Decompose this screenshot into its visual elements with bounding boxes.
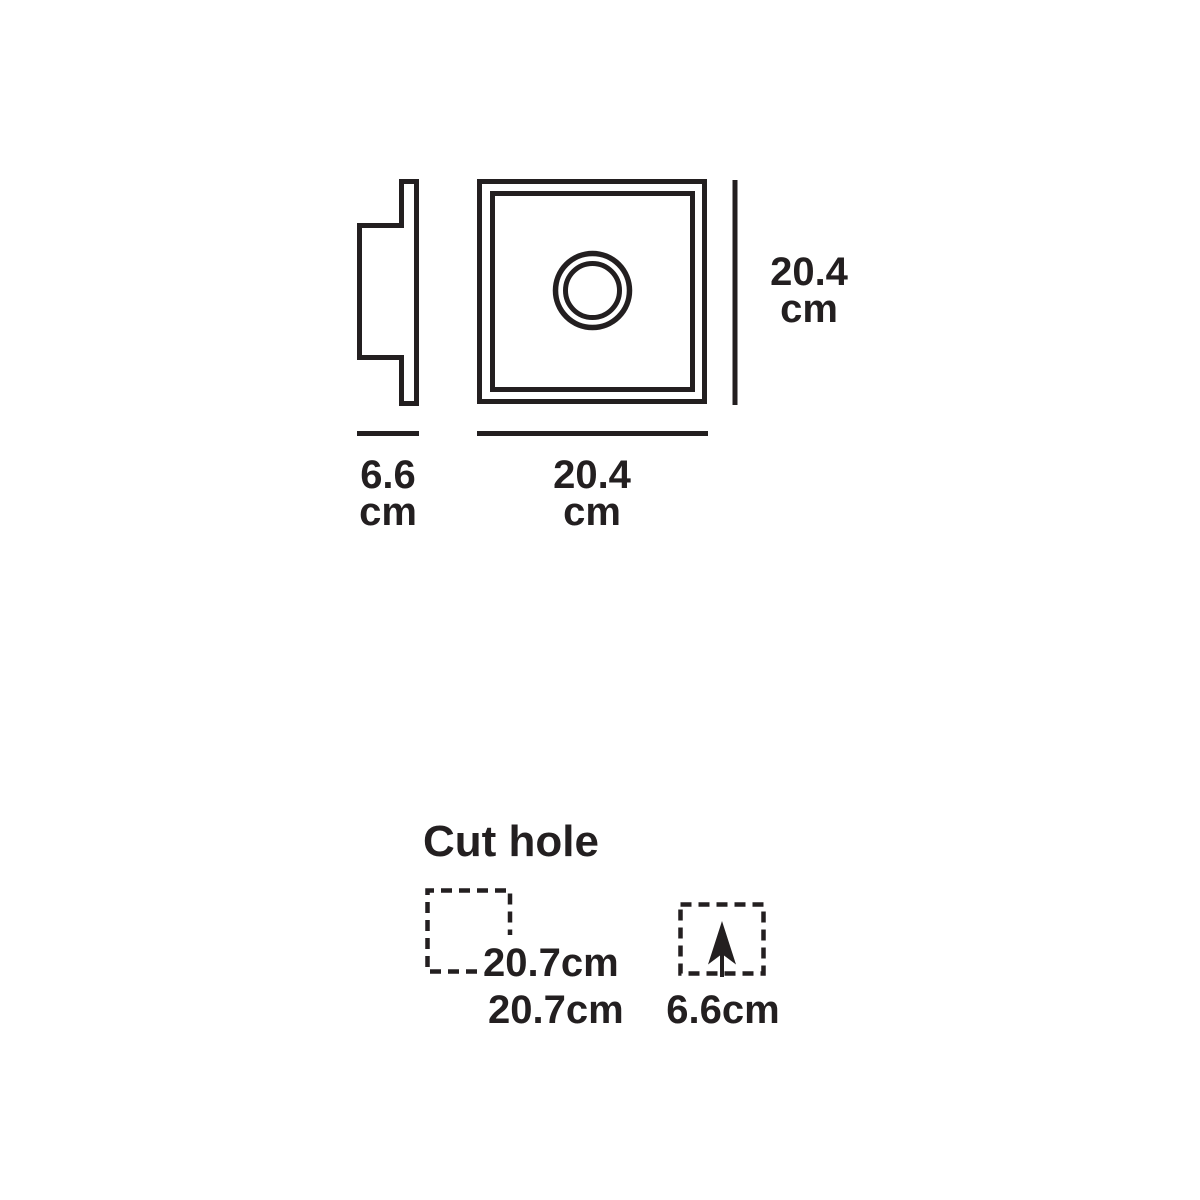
- front-inner-square: [493, 194, 693, 390]
- arrow-up-icon: [708, 921, 736, 977]
- cut-hole-title: Cut hole: [423, 820, 599, 864]
- side-width-label: 6.6 cm: [359, 457, 417, 531]
- product-dimensions-diagram: 6.6 cm 20.4 cm 20.4 cm Cut hole 20.7cm 2…: [0, 0, 1200, 1200]
- cut-hole-width-label: 20.7cm: [483, 943, 619, 983]
- front-circle-inner: [566, 264, 620, 318]
- front-width-label: 20.4 cm: [553, 457, 631, 531]
- cut-hole-height-label: 20.7cm: [488, 990, 624, 1030]
- front-height-label: 20.4 cm: [770, 254, 848, 328]
- cut-depth-label: 6.6cm: [666, 990, 779, 1030]
- front-outer-square: [480, 182, 705, 402]
- side-profile-outline: [360, 182, 417, 404]
